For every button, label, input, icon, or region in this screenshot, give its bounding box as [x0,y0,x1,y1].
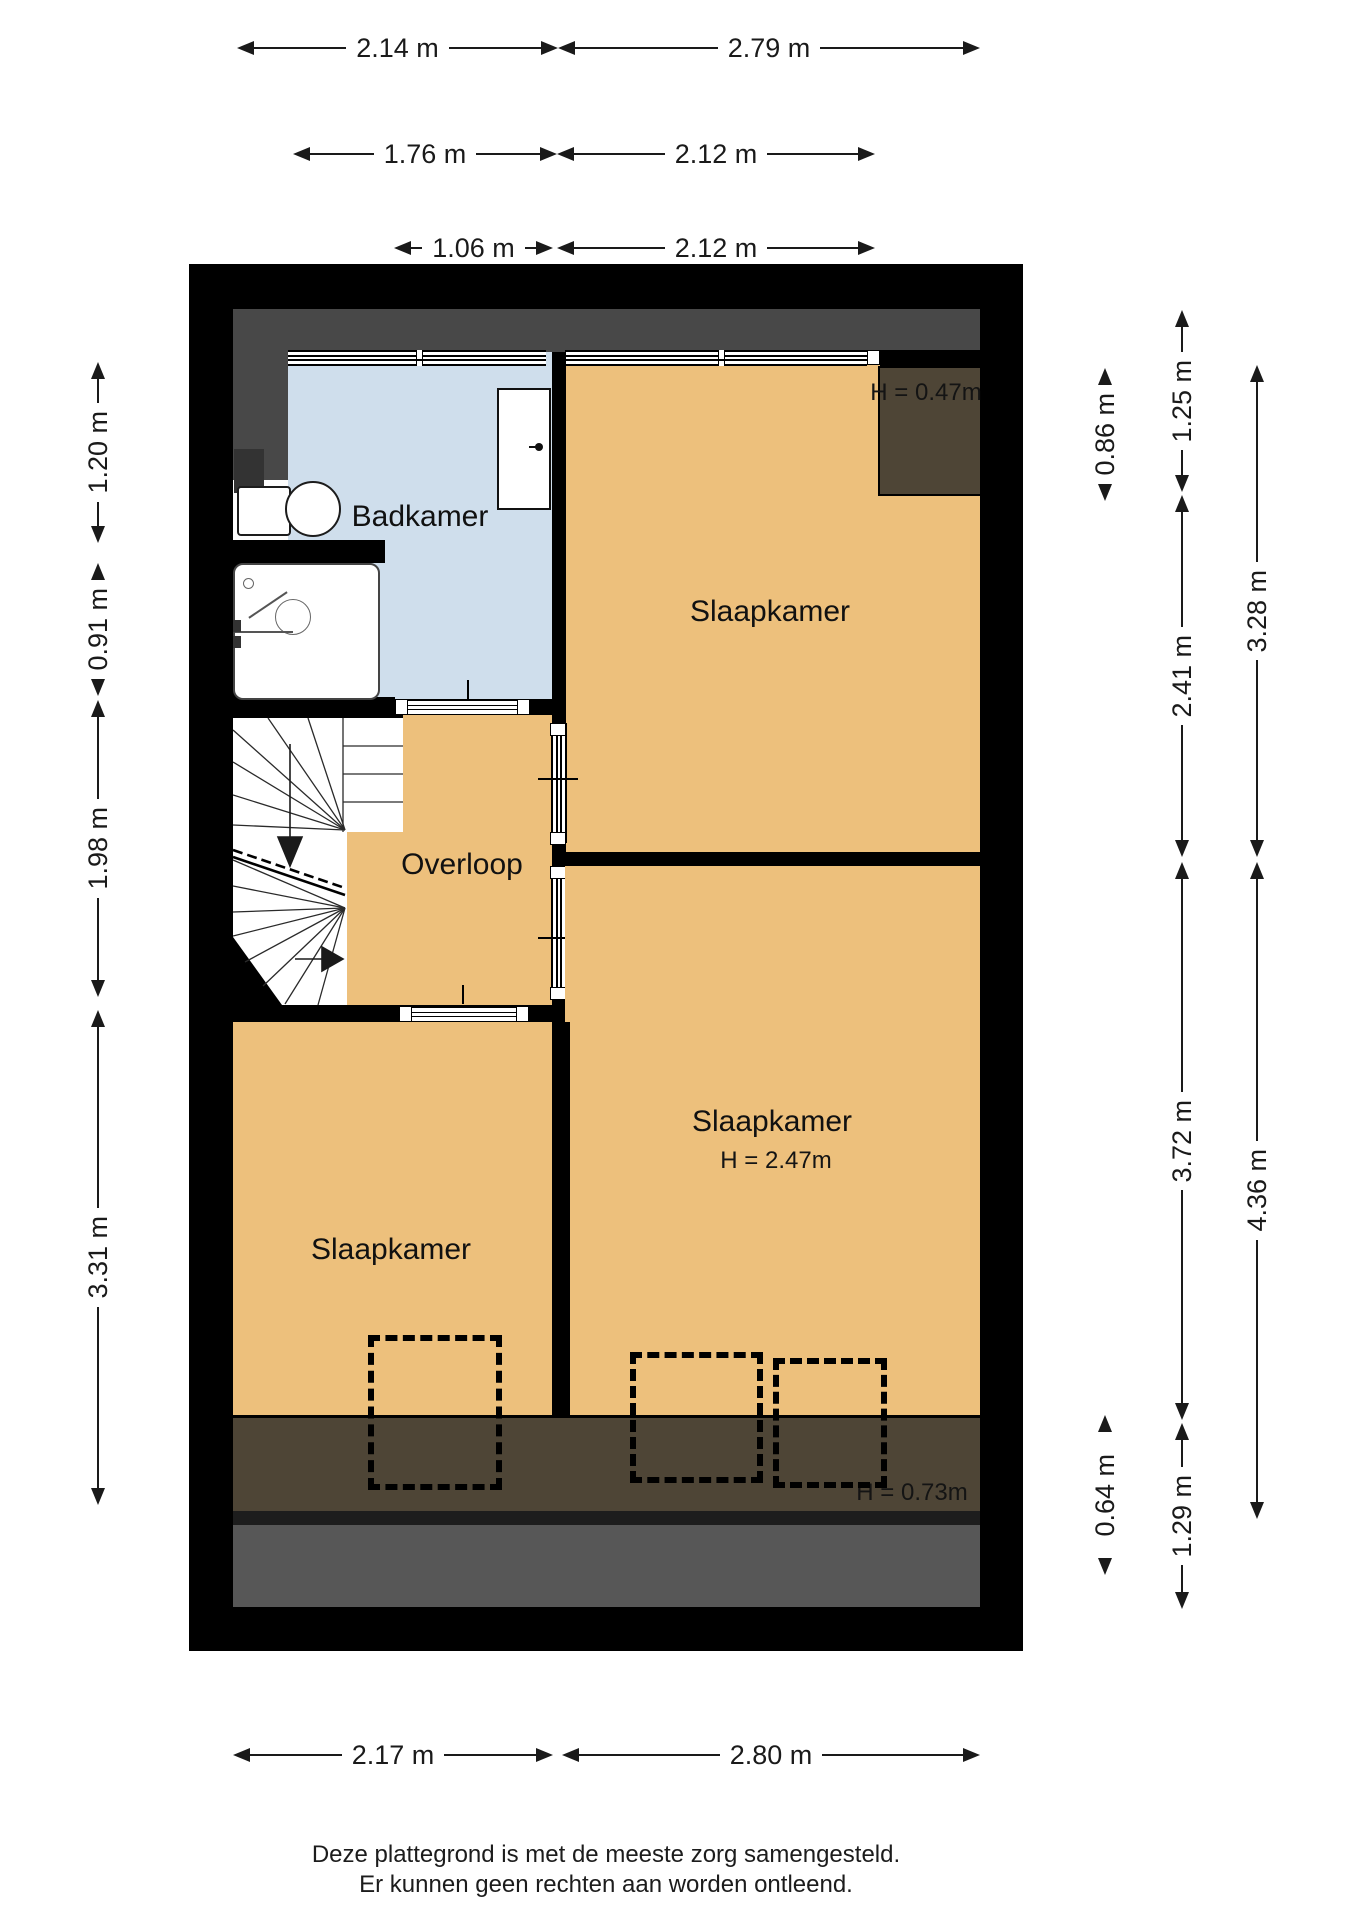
dim-line [254,47,346,49]
dim-line [476,153,540,155]
door-tick [538,778,578,780]
dim-top-row3-b: 2.12 m [557,233,875,263]
dimension-label: 0.91 m [83,580,114,679]
dimension-label: 1.25 m [1167,352,1198,451]
dim-left-2: 0.91 m [83,563,113,682]
door-badkamer-leaf [497,388,551,510]
window-end-cap [517,699,530,715]
dimension-label: 1.29 m [1167,1467,1198,1566]
arrow-left-icon [233,1748,250,1762]
dim-line [97,898,99,980]
footer-disclaimer: Deze plattegrond is met de meeste zorg s… [189,1840,1023,1900]
arrow-down-icon [1175,840,1189,857]
dim-line [411,247,422,249]
window-end-cap [867,350,880,365]
dimension-label: 2.14 m [346,33,449,64]
dim-line [444,1754,536,1756]
footer-line: Er kunnen geen rechten aan worden ontlee… [189,1870,1023,1900]
dim-line [97,502,99,526]
window-mullion [718,350,725,366]
window-end-cap [399,1006,412,1022]
dim-right-inner-bottom: 0.64 m [1090,1415,1120,1575]
door-end-cap [550,987,566,1000]
dormer-outline [368,1335,502,1490]
footer-line: Deze plattegrond is met de meeste zorg s… [189,1840,1023,1870]
dim-line [97,379,99,403]
arrow-up-icon [1098,368,1112,385]
dim-line [579,1754,720,1756]
arrow-down-icon [1098,1558,1112,1575]
dim-left-3: 1.98 m [83,700,113,997]
arrow-left-icon [237,41,254,55]
arrow-down-icon [91,526,105,543]
roof-edge-band [233,1511,980,1525]
dim-line [97,1307,99,1488]
dim-line [574,247,665,249]
dimension-label: 1.20 m [83,403,114,502]
arrow-up-icon [91,362,105,379]
floor-plan: H = 0.47m [189,264,1023,1651]
arrow-down-icon [1175,1403,1189,1420]
arrow-up-icon [91,1010,105,1027]
dim-top-row2-b: 2.12 m [557,139,875,169]
dim-line [1181,879,1183,1092]
dim-left-1: 1.20 m [83,362,113,543]
dim-line [767,247,858,249]
dim-bottom-a: 2.17 m [233,1740,553,1770]
height-text: H = 2.47m [720,1147,831,1175]
height-label-room: H = 2.47m [696,1146,856,1176]
door-end-cap [550,832,566,845]
dormer-outline [630,1352,763,1483]
arrow-right-icon [536,1748,553,1762]
dimension-label: 0.64 m [1090,1446,1121,1545]
sloped-ceiling-strip-bottom [233,1525,980,1607]
dim-top-row1-a: 2.14 m [237,33,558,63]
window-slaapkamer-top [565,350,867,366]
dim-right-mid-4: 1.29 m [1167,1423,1197,1609]
door-slaapkamer-top [551,723,567,843]
arrow-right-icon [963,1748,980,1762]
dimension-label: 3.72 m [1167,1092,1198,1191]
arrow-up-icon [1250,862,1264,879]
sloped-ceiling-strip-top [233,309,980,352]
shower-drain [275,599,311,635]
arrow-right-icon [858,241,875,255]
dim-line [1181,725,1183,840]
dimension-label: 2.12 m [665,139,768,170]
arrow-up-icon [1175,310,1189,327]
interior-window-overloop-slaapkamer [399,1006,527,1023]
dimension-label: 3.31 m [83,1208,114,1307]
arrow-down-icon [1175,1592,1189,1609]
wall-between-right-bedrooms [552,852,980,866]
arrow-up-icon [91,700,105,717]
dimension-label: 2.41 m [1167,627,1198,726]
toilet-bowl [285,481,341,537]
arrow-right-icon [858,147,875,161]
arrow-left-icon [394,241,411,255]
dim-line [822,1754,963,1756]
arrow-up-icon [1250,365,1264,382]
arrow-left-icon [562,1748,579,1762]
wall-overloop-top [528,699,554,716]
dim-right-mid-1: 1.25 m [1167,310,1197,492]
height-text: H = 0.47m [870,379,981,407]
dimension-label: 3.28 m [1242,562,1273,661]
window-mullion [416,350,423,366]
window-tick [462,985,464,1004]
dim-top-row2-a: 1.76 m [293,139,557,169]
dim-left-4: 3.31 m [83,1010,113,1505]
room-name: Overloop [401,848,523,882]
arrow-down-icon [1250,1502,1264,1519]
dim-line [1181,1190,1183,1403]
arrow-right-icon [541,41,558,55]
shower-head [243,578,254,589]
arrow-down-icon [1098,484,1112,501]
dim-line [767,153,858,155]
room-name: Badkamer [352,500,489,534]
door-knob-icon [535,443,543,451]
room-name: Slaapkamer [311,1233,471,1267]
arrow-down-icon [91,980,105,997]
dim-line [310,153,374,155]
arrow-up-icon [91,563,105,580]
floorplan-page: 2.14 m 2.79 m 1.76 m 2.12 m 1.06 m 2.12 … [0,0,1358,1920]
dim-right-inner-top: 0.86 m [1090,368,1120,493]
dimension-label: 1.06 m [422,233,525,264]
room-label-slaapkamer-left: Slaapkamer [311,1233,471,1267]
dim-top-row3-a: 1.06 m [394,233,553,263]
wall-between-lower-bedrooms [552,1022,570,1415]
dimension-label: 1.98 m [83,799,114,898]
dim-line [97,1027,99,1208]
dimension-label: 0.86 m [1090,385,1121,484]
dim-line [1256,382,1258,562]
room-label-slaapkamer-top: Slaapkamer [690,595,850,629]
dim-right-outer-1: 3.28 m [1242,365,1272,857]
dim-line [97,717,99,799]
arrow-right-icon [963,41,980,55]
interior-window-badkamer-overloop [395,699,528,716]
wall-toilet [233,540,385,563]
door-knob-icon [529,446,536,448]
arrow-up-icon [1098,1415,1112,1432]
dim-right-mid-2: 2.41 m [1167,495,1197,857]
dimension-label: 4.36 m [1242,1141,1273,1240]
arrow-right-icon [536,241,553,255]
dim-line [1181,327,1183,352]
shower-valve [233,636,241,648]
dim-line [250,1754,342,1756]
dormer-outline [773,1358,887,1488]
room-name: Slaapkamer [692,1105,852,1139]
room-label-badkamer: Badkamer [340,500,500,534]
dim-line [575,47,718,49]
room-slaapkamer-right-floor [565,866,980,1415]
dim-line [449,47,541,49]
height-label-attic-top: H = 0.47m [870,380,982,406]
dimension-label: 2.79 m [718,33,821,64]
dim-line [525,247,536,249]
door-end-cap [550,866,566,879]
window-badkamer [288,350,546,366]
window-tick [467,680,469,699]
dim-line [1181,450,1183,475]
arrow-down-icon [1175,475,1189,492]
room-label-slaapkamer-right: Slaapkamer [692,1105,852,1139]
dim-line [1181,512,1183,627]
dimension-label: 2.12 m [665,233,768,264]
dim-right-mid-3: 3.72 m [1167,862,1197,1420]
dim-right-outer-2: 4.36 m [1242,862,1272,1519]
arrow-left-icon [557,147,574,161]
dim-bottom-b: 2.80 m [562,1740,980,1770]
dim-line [1181,1565,1183,1592]
dim-line [820,47,963,49]
arrow-down-icon [91,679,105,696]
dimension-label: 2.80 m [720,1740,823,1771]
dimension-label: 1.76 m [374,139,477,170]
dim-line [1181,1440,1183,1467]
room-label-overloop: Overloop [382,848,542,882]
dim-line [1256,1240,1258,1502]
arrow-left-icon [557,241,574,255]
dim-line [1256,879,1258,1141]
arrow-right-icon [540,147,557,161]
dim-top-row1-b: 2.79 m [558,33,980,63]
arrow-up-icon [1175,495,1189,512]
room-overloop-floor-a [403,715,552,832]
arrow-down-icon [91,1488,105,1505]
dim-line [1256,660,1258,840]
arrow-left-icon [293,147,310,161]
toilet-tank [237,486,291,536]
dimension-label: 2.17 m [342,1740,445,1771]
arrow-up-icon [1175,1423,1189,1440]
arrow-left-icon [558,41,575,55]
dim-line [574,153,665,155]
arrow-down-icon [1250,840,1264,857]
shower-arm [235,631,293,633]
arrow-up-icon [1175,862,1189,879]
shower-valve [233,620,241,632]
door-end-cap [550,723,566,736]
room-name: Slaapkamer [690,595,850,629]
window-end-cap [516,1006,529,1022]
